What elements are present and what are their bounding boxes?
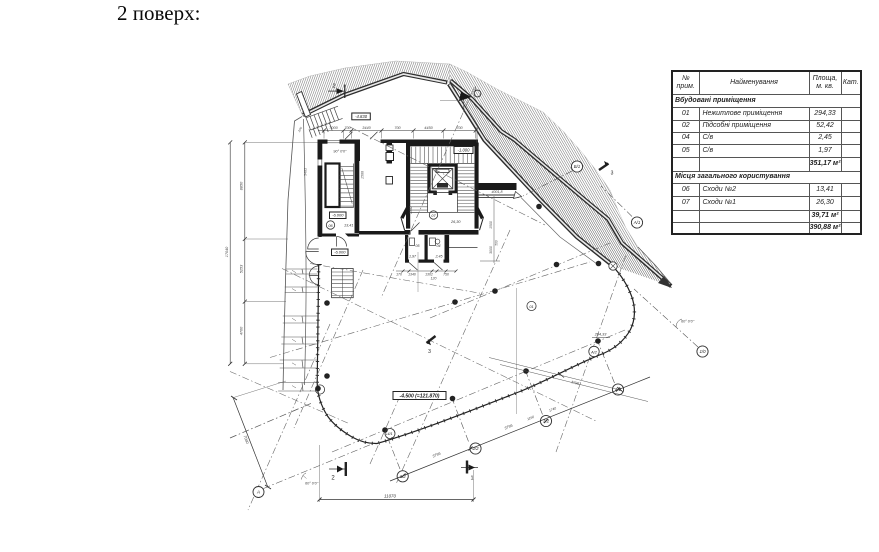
svg-text:1,97: 1,97 xyxy=(409,255,417,259)
svg-text:06: 06 xyxy=(328,224,333,228)
svg-text:4450: 4450 xyxy=(424,126,433,130)
svg-text:-4.830: -4.830 xyxy=(355,114,368,119)
svg-text:200: 200 xyxy=(297,126,304,134)
svg-text:4700: 4700 xyxy=(239,326,243,335)
svg-text:А/2: А/2 xyxy=(590,350,598,354)
svg-text:3000: 3000 xyxy=(489,246,493,254)
svg-text:1: 1 xyxy=(474,87,477,93)
svg-text:1302: 1302 xyxy=(409,206,413,214)
svg-text:700: 700 xyxy=(344,126,351,130)
svg-text:1340: 1340 xyxy=(408,273,416,277)
svg-text:07: 07 xyxy=(431,214,436,218)
svg-text:1: 1 xyxy=(470,476,473,482)
svg-text:-6.000: -6.000 xyxy=(334,250,346,255)
svg-text:3440: 3440 xyxy=(362,126,371,130)
svg-text:700: 700 xyxy=(394,126,401,130)
svg-text:26,30: 26,30 xyxy=(450,220,461,224)
svg-text:3: 3 xyxy=(611,171,614,177)
svg-text:А/1: А/1 xyxy=(633,220,641,225)
svg-text:13,41: 13,41 xyxy=(344,224,354,228)
svg-text:2: 2 xyxy=(331,476,335,482)
svg-text:2: 2 xyxy=(332,84,335,90)
svg-text:5795: 5795 xyxy=(504,423,514,430)
svg-text:750: 750 xyxy=(443,273,449,277)
svg-text:17040: 17040 xyxy=(225,246,229,257)
svg-text:2,45: 2,45 xyxy=(435,255,443,259)
svg-text:7000: 7000 xyxy=(329,126,338,130)
svg-text:60° 0'0'': 60° 0'0'' xyxy=(305,482,318,486)
svg-text:4001,8: 4001,8 xyxy=(492,190,503,194)
svg-text:1/0: 1/0 xyxy=(699,349,706,354)
svg-text:-4.500 (=121.870): -4.500 (=121.870) xyxy=(400,394,440,400)
svg-text:1740: 1740 xyxy=(548,406,557,413)
svg-text:5403: 5403 xyxy=(304,168,308,176)
svg-text:120: 120 xyxy=(431,277,437,281)
svg-text:-6.000: -6.000 xyxy=(332,213,344,218)
svg-text:11070: 11070 xyxy=(384,494,396,499)
svg-text:5795: 5795 xyxy=(571,380,580,386)
svg-text:294,33: 294,33 xyxy=(594,333,608,337)
svg-text:700: 700 xyxy=(456,126,463,130)
svg-text:04: 04 xyxy=(437,244,441,248)
svg-text:8850: 8850 xyxy=(239,181,243,190)
svg-text:5795: 5795 xyxy=(432,451,442,458)
svg-text:А: А xyxy=(256,490,260,495)
svg-text:-1.000: -1.000 xyxy=(458,148,471,153)
svg-text:3: 3 xyxy=(428,349,431,355)
svg-text:1500: 1500 xyxy=(361,171,365,179)
svg-text:05: 05 xyxy=(416,244,420,248)
svg-text:5253: 5253 xyxy=(239,264,243,273)
svg-text:01: 01 xyxy=(529,305,533,309)
svg-text:1500: 1500 xyxy=(489,221,493,229)
svg-text:170: 170 xyxy=(396,273,402,277)
svg-text:90° 0'0'': 90° 0'0'' xyxy=(333,150,346,154)
svg-text:1160: 1160 xyxy=(526,415,534,421)
svg-text:60° 0'0'': 60° 0'0'' xyxy=(681,320,694,324)
svg-text:4/1: 4/1 xyxy=(387,432,392,436)
svg-text:Б/1: Б/1 xyxy=(574,164,581,169)
svg-text:500: 500 xyxy=(495,240,499,246)
